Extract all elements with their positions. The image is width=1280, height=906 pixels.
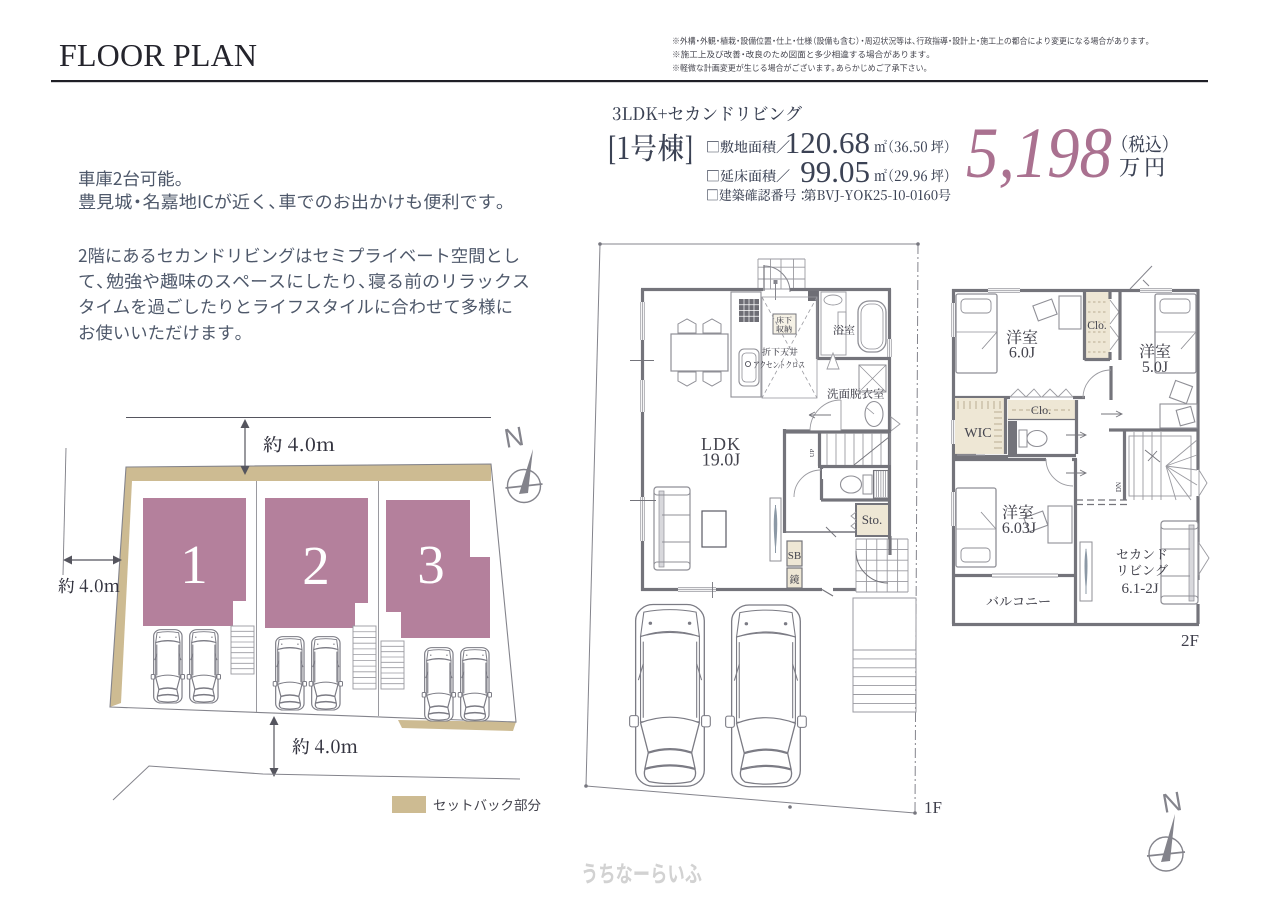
svg-text:1F: 1F bbox=[924, 798, 942, 817]
svg-text:99.05: 99.05 bbox=[800, 154, 870, 189]
svg-text:WIC: WIC bbox=[964, 426, 991, 441]
svg-text:Sto.: Sto. bbox=[862, 512, 883, 527]
svg-text:FLOOR PLAN: FLOOR PLAN bbox=[59, 37, 257, 73]
svg-text:3: 3 bbox=[417, 534, 445, 595]
svg-text:Clo.: Clo. bbox=[1087, 320, 1107, 332]
svg-text:19.0J: 19.0J bbox=[702, 450, 741, 470]
svg-text:N: N bbox=[1160, 786, 1184, 819]
svg-text:6.0J: 6.0J bbox=[1009, 345, 1035, 362]
svg-text:UP: UP bbox=[809, 448, 816, 457]
svg-text:N: N bbox=[502, 421, 526, 454]
svg-text:2: 2 bbox=[302, 535, 330, 596]
svg-text:DN: DN bbox=[1115, 482, 1123, 492]
svg-text:6.1-2J: 6.1-2J bbox=[1121, 581, 1158, 597]
svg-text:SB: SB bbox=[788, 550, 801, 562]
svg-text:5,198: 5,198 bbox=[966, 113, 1112, 193]
svg-text:6.03J: 6.03J bbox=[1002, 520, 1036, 537]
svg-text:1: 1 bbox=[180, 534, 208, 595]
svg-text:5.0J: 5.0J bbox=[1142, 359, 1168, 376]
svg-text:Clo.: Clo. bbox=[1031, 403, 1051, 417]
svg-text:2F: 2F bbox=[1181, 631, 1199, 650]
